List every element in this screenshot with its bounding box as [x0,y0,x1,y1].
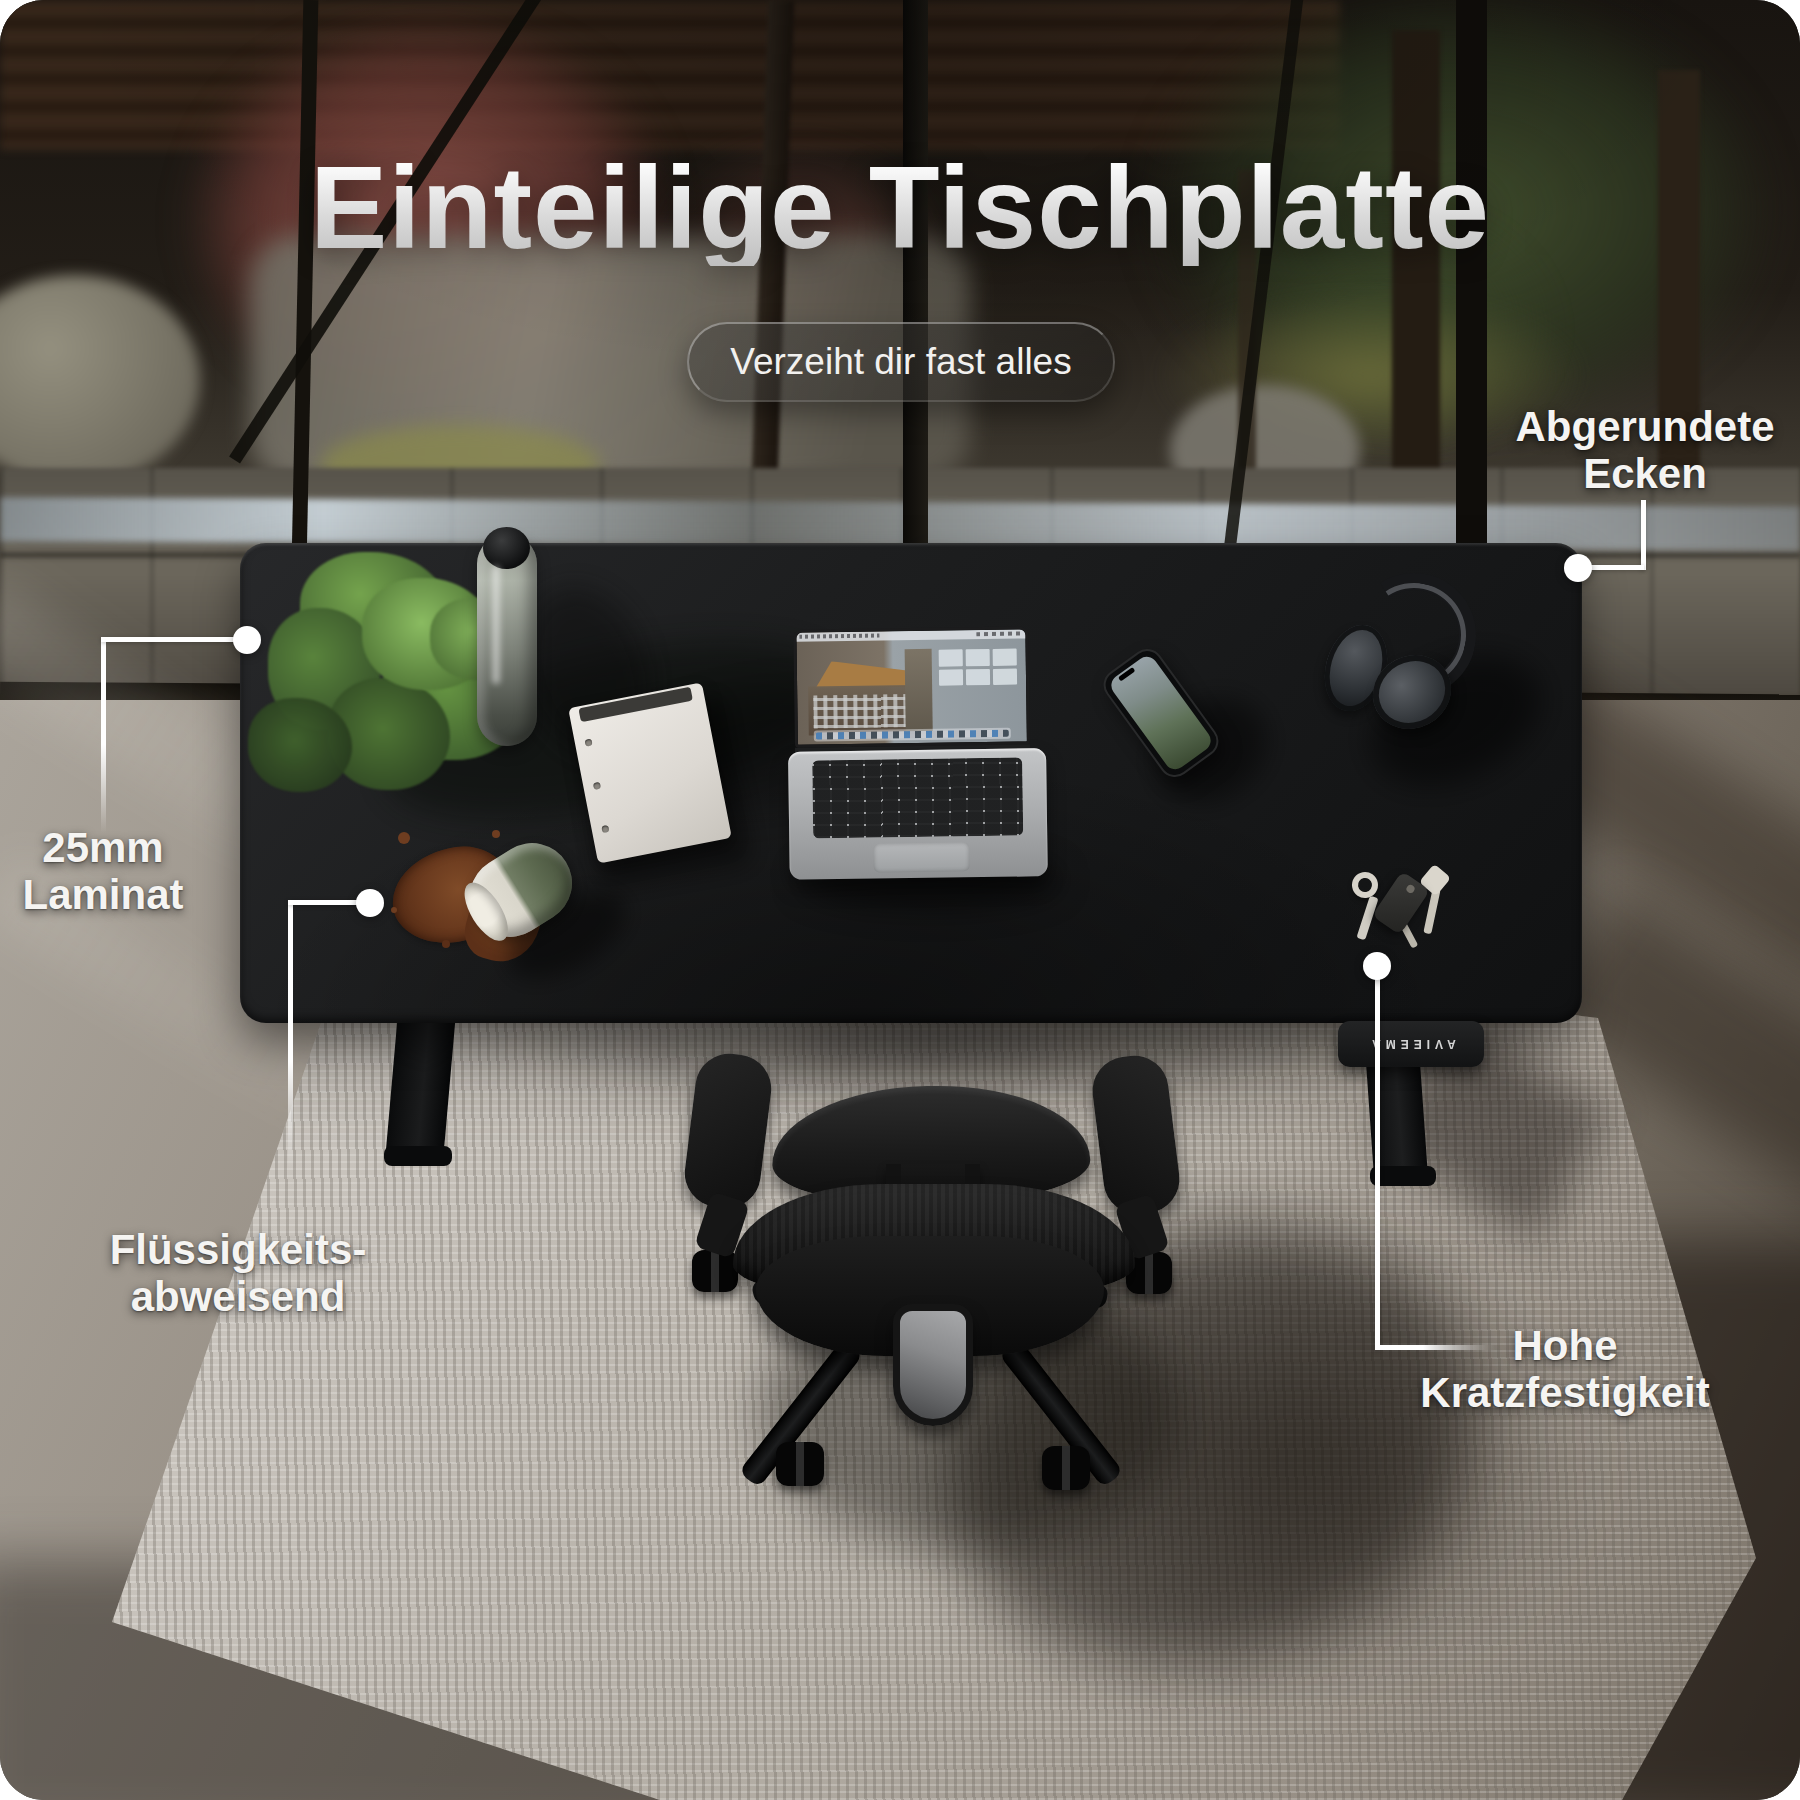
bottle-highlight [492,566,500,684]
callout-dot-liquid [356,889,384,917]
callout-text: Laminat [10,871,196,918]
callout-dot-rounded-corners [1564,554,1592,582]
callout-label-scratch: Hohe Kratzfestigkeit [1380,1322,1750,1416]
leader-line-laminate [101,637,106,833]
callout-text: 25mm [10,824,196,871]
page-title: Einteilige Tischplatte [0,150,1800,266]
subtitle-badge-text: Verzeiht dir fast alles [730,341,1071,383]
notebook-hole [593,782,601,790]
callout-label-laminate: 25mm Laminat [10,824,196,918]
desk-foot-left [384,1146,452,1166]
notebook-hole [601,825,609,833]
laptop-screen [793,626,1030,747]
callout-dot-scratch [1363,952,1391,980]
display-window-panels [939,649,1020,720]
leader-line-rounded-corners [1641,500,1646,570]
bottle-cap [483,527,530,569]
callout-text: Kratzfestigkeit [1380,1369,1750,1416]
chair-caster [692,1250,738,1292]
plant-foliage [248,698,352,792]
leader-line-laminate [101,637,249,642]
laptop-display [796,629,1027,744]
laptop-keyboard [812,758,1023,839]
key-fob-hole [1405,883,1416,894]
laptop-trackpad [873,842,969,872]
chair-lumbar-support [893,1304,973,1426]
display-dock-icons [816,730,1009,740]
callout-text: abweisend [58,1273,418,1320]
product-feature-image: AVIEEMA [0,0,1800,1800]
coffee-droplets [398,832,410,844]
callout-label-rounded-corners: Abgerundete Ecken [1495,403,1795,497]
callout-text: Ecken [1495,450,1795,497]
display-dock [814,728,1011,742]
desk-height-controller[interactable]: AVIEEMA [1338,1021,1484,1067]
leader-line-scratch [1375,976,1380,1350]
notebook-hole [584,739,592,747]
leader-line-liquid [288,900,293,1170]
callout-text: Abgerundete [1495,403,1795,450]
display-tower [904,649,933,734]
chair-caster [776,1442,824,1486]
callout-text: Hohe [1380,1322,1750,1369]
callout-dot-laminate [233,626,261,654]
display-status-icons [976,632,1022,637]
callout-text: Flüssigkeits- [58,1226,418,1273]
display-building-windows [813,694,910,729]
subtitle-badge: Verzeiht dir fast alles [687,322,1115,402]
chair-caster [1042,1446,1090,1490]
laptop-body [788,748,1048,880]
laptop [786,618,1048,880]
callout-label-liquid: Flüssigkeits- abweisend [58,1226,418,1320]
